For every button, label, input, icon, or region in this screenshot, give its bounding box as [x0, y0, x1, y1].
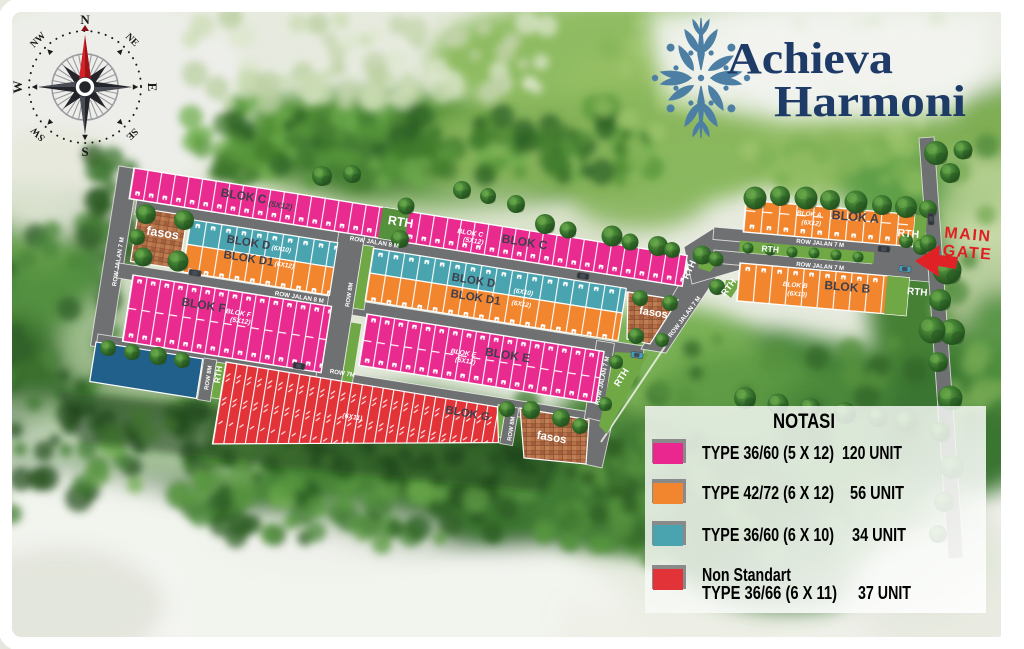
svg-text:Achieva: Achieva	[727, 34, 893, 83]
svg-text:N: N	[80, 12, 90, 27]
svg-text:RTH: RTH	[761, 243, 779, 254]
svg-text:TYPE 42/72 (6 X 12): TYPE 42/72 (6 X 12)	[702, 483, 834, 503]
svg-text:120 UNIT: 120 UNIT	[842, 443, 902, 463]
svg-text:RTH: RTH	[897, 227, 920, 241]
svg-text:TYPE 36/60 (6 X 10): TYPE 36/60 (6 X 10)	[702, 525, 834, 545]
svg-text:34 UNIT: 34 UNIT	[852, 525, 906, 545]
svg-text:E: E	[145, 83, 160, 92]
svg-text:TYPE 36/60 (5 X 12): TYPE 36/60 (5 X 12)	[702, 443, 834, 463]
svg-text:NOTASI: NOTASI	[773, 410, 835, 433]
svg-text:RTH: RTH	[906, 286, 927, 299]
svg-text:W: W	[10, 81, 25, 94]
svg-text:Harmoni: Harmoni	[774, 77, 966, 126]
svg-text:S: S	[81, 144, 88, 159]
svg-text:TYPE 36/66 (6 X 11): TYPE 36/66 (6 X 11)	[702, 583, 837, 603]
svg-text:Non Standart: Non Standart	[702, 565, 791, 585]
svg-text:56 UNIT: 56 UNIT	[850, 483, 904, 503]
svg-text:37 UNIT: 37 UNIT	[858, 583, 911, 603]
